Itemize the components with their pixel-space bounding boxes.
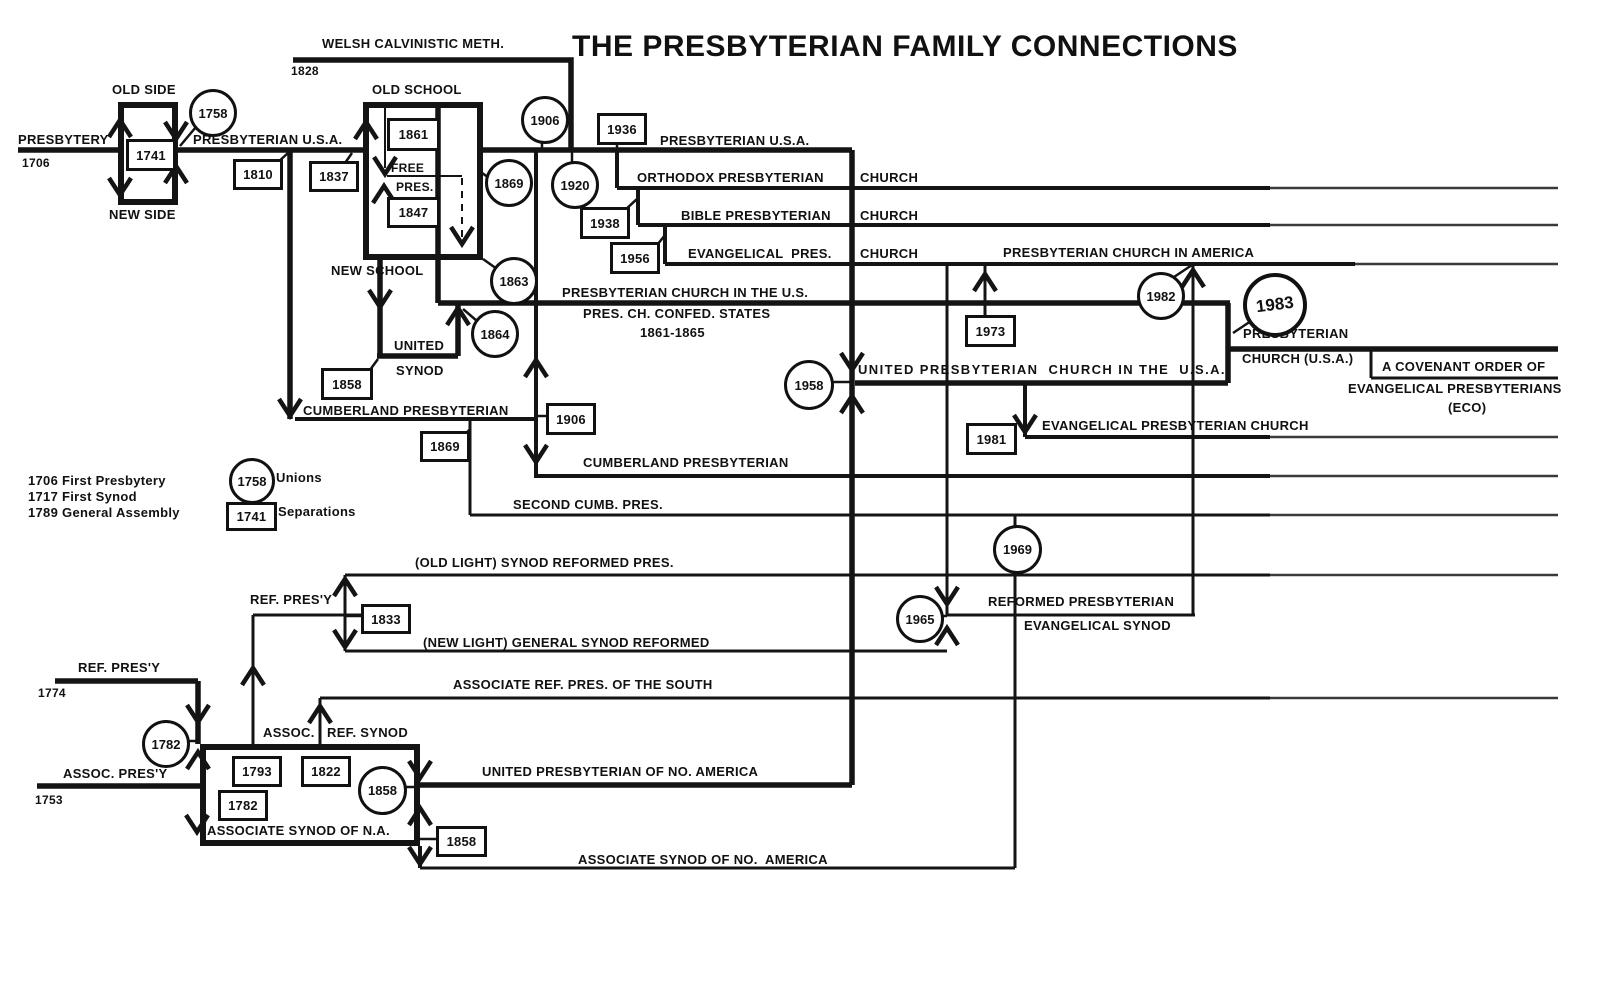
- union-1869: 1869: [485, 159, 533, 207]
- separation-1858-assoc-synod: 1858: [436, 826, 487, 857]
- separation-1936: 1936: [597, 113, 647, 145]
- legend-union-circle: 1758: [229, 458, 275, 504]
- union-1958: 1958: [784, 360, 834, 410]
- label-assoc-synod-na: ASSOCIATE SYNOD OF N.A.: [207, 824, 390, 838]
- label-upna: UNITED PRESBYTERIAN OF NO. AMERICA: [482, 765, 758, 779]
- label-orthodox: ORTHODOX PRESBYTERIAN: [637, 171, 824, 185]
- label-assoc: ASSOC.: [263, 726, 315, 740]
- label-ref-presy-upper: REF. PRES'Y: [250, 593, 332, 607]
- separation-1981: 1981: [966, 423, 1017, 455]
- label-confed-years: 1861-1865: [640, 326, 705, 340]
- label-welsh: WELSH CALVINISTIC METH.: [322, 37, 504, 51]
- page-title: THE PRESBYTERIAN FAMILY CONNECTIONS: [572, 30, 1238, 64]
- separation-1782: 1782: [218, 790, 268, 821]
- label-presbytery: PRESBYTERY: [18, 133, 109, 147]
- legend-first-synod: 1717 First Synod: [28, 490, 137, 504]
- separation-1810: 1810: [233, 159, 283, 190]
- legend-unions-label: Unions: [276, 471, 322, 485]
- separation-1869-second-cumb: 1869: [420, 431, 470, 462]
- label-free: FREE: [391, 162, 424, 175]
- label-new-school: NEW SCHOOL: [331, 264, 424, 278]
- presbyterian-family-diagram: THE PRESBYTERIAN FAMILY CONNECTIONS PRES…: [0, 0, 1600, 987]
- label-evangelical-church: CHURCH: [860, 247, 918, 261]
- label-ref-presy-lower: REF. PRES'Y: [78, 661, 160, 675]
- separation-1741: 1741: [126, 139, 176, 171]
- label-pca: PRESBYTERIAN CHURCH IN AMERICA: [1003, 246, 1254, 260]
- label-second-cumb: SECOND CUMB. PRES.: [513, 498, 663, 512]
- label-new-light: (NEW LIGHT) GENERAL SYNOD REFORMED: [423, 636, 710, 650]
- union-1920: 1920: [551, 161, 599, 209]
- label-cumberland-1: CUMBERLAND PRESBYTERIAN: [303, 404, 509, 418]
- separation-1956: 1956: [610, 242, 660, 274]
- separation-1938: 1938: [580, 207, 630, 239]
- label-ref-synod: REF. SYNOD: [327, 726, 408, 740]
- label-eco-2: EVANGELICAL PRESBYTERIANS: [1348, 382, 1562, 396]
- separation-1822: 1822: [301, 756, 351, 787]
- legend-separation-box: 1741: [226, 502, 277, 531]
- label-presbyterian-usa-right: PRESBYTERIAN U.S.A.: [660, 134, 809, 148]
- label-cumberland-2: CUMBERLAND PRESBYTERIAN: [583, 456, 789, 470]
- union-1858: 1858: [358, 766, 407, 815]
- separation-1847: 1847: [387, 197, 440, 228]
- legend-general-assembly: 1789 General Assembly: [28, 506, 180, 520]
- label-epc: EVANGELICAL PRESBYTERIAN CHURCH: [1042, 419, 1309, 433]
- label-orthodox-church: CHURCH: [860, 171, 918, 185]
- legend-first-presbytery: 1706 First Presbytery: [28, 474, 166, 488]
- separation-1861: 1861: [387, 118, 440, 151]
- label-1753: 1753: [35, 794, 63, 807]
- separation-1906-cumberland: 1906: [546, 403, 596, 435]
- union-1969: 1969: [993, 525, 1042, 574]
- label-rpces-2: EVANGELICAL SYNOD: [1024, 619, 1171, 633]
- label-1706: 1706: [22, 157, 50, 170]
- union-1782: 1782: [142, 720, 190, 768]
- label-assoc-presy: ASSOC. PRES'Y: [63, 767, 168, 781]
- union-1864: 1864: [471, 310, 519, 358]
- union-1983-year: 1983: [1255, 293, 1295, 317]
- label-arp-south: ASSOCIATE REF. PRES. OF THE SOUTH: [453, 678, 713, 692]
- label-free-pres: PRES.: [396, 181, 434, 194]
- label-rpces-1: REFORMED PRESBYTERIAN: [988, 595, 1174, 609]
- separation-1858-united-synod: 1858: [321, 368, 373, 400]
- separation-1837: 1837: [309, 161, 359, 192]
- separation-1793: 1793: [232, 756, 282, 787]
- label-confed: PRES. CH. CONFED. STATES: [583, 307, 770, 321]
- label-1828: 1828: [291, 65, 319, 78]
- label-evangelical-pres: EVANGELICAL PRES.: [688, 247, 832, 261]
- label-upcusa: UNITED PRESBYTERIAN CHURCH IN THE U.S.A.: [858, 363, 1226, 377]
- label-new-side: NEW SIDE: [109, 208, 176, 222]
- label-old-light: (OLD LIGHT) SYNOD REFORMED PRES.: [415, 556, 674, 570]
- legend-separations-label: Separations: [278, 505, 356, 519]
- label-pcus: PRESBYTERIAN CHURCH IN THE U.S.: [562, 286, 808, 300]
- label-bible-church: CHURCH: [860, 209, 918, 223]
- union-1982: 1982: [1137, 272, 1185, 320]
- label-united-synod: SYNOD: [396, 364, 444, 378]
- union-1983: 1983: [1243, 273, 1307, 337]
- label-united: UNITED: [394, 339, 444, 353]
- union-1758: 1758: [189, 89, 237, 137]
- label-1774: 1774: [38, 687, 66, 700]
- separation-1973: 1973: [965, 315, 1016, 347]
- union-1965: 1965: [896, 595, 944, 643]
- label-eco-3: (ECO): [1448, 401, 1486, 415]
- arrow-icons: [109, 120, 1204, 864]
- label-assoc-synod-no-america: ASSOCIATE SYNOD OF NO. AMERICA: [578, 853, 828, 867]
- label-bible: BIBLE PRESBYTERIAN: [681, 209, 831, 223]
- union-1863: 1863: [490, 257, 538, 305]
- label-old-side: OLD SIDE: [112, 83, 176, 97]
- union-1906: 1906: [521, 96, 569, 144]
- label-old-school: OLD SCHOOL: [372, 83, 462, 97]
- label-eco-1: A COVENANT ORDER OF: [1382, 360, 1545, 374]
- label-pcusa-line2: CHURCH (U.S.A.): [1242, 352, 1353, 366]
- separation-1833: 1833: [361, 604, 411, 634]
